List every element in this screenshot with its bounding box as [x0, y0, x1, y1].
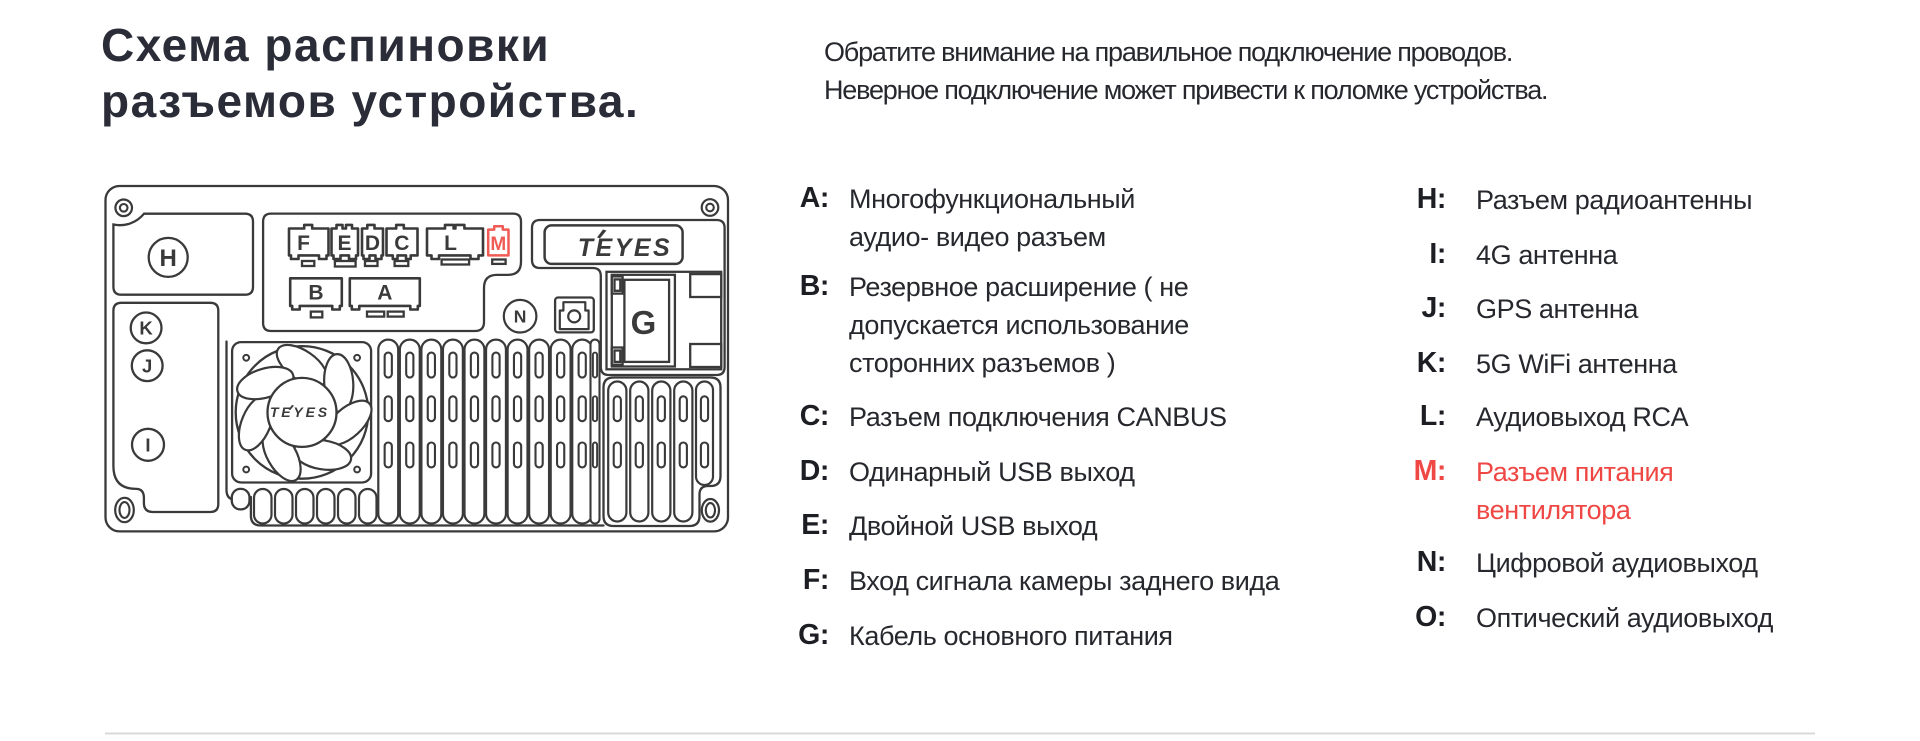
svg-text:G: G	[631, 304, 657, 341]
svg-text:C: C	[394, 232, 409, 255]
svg-text:TEYES: TEYES	[270, 404, 330, 420]
svg-text:J: J	[142, 355, 152, 376]
svg-text:TEYES: TEYES	[578, 234, 672, 262]
svg-text:E: E	[337, 232, 351, 255]
svg-text:I: I	[145, 435, 150, 456]
svg-text:A: A	[377, 282, 392, 305]
svg-text:N: N	[514, 307, 527, 327]
svg-text:K: K	[139, 318, 153, 339]
svg-text:D: D	[365, 232, 380, 255]
svg-text:B: B	[308, 282, 323, 305]
svg-text:M: M	[490, 234, 506, 255]
svg-text:F: F	[297, 232, 310, 255]
svg-text:H: H	[160, 245, 177, 272]
svg-text:L: L	[444, 232, 457, 255]
